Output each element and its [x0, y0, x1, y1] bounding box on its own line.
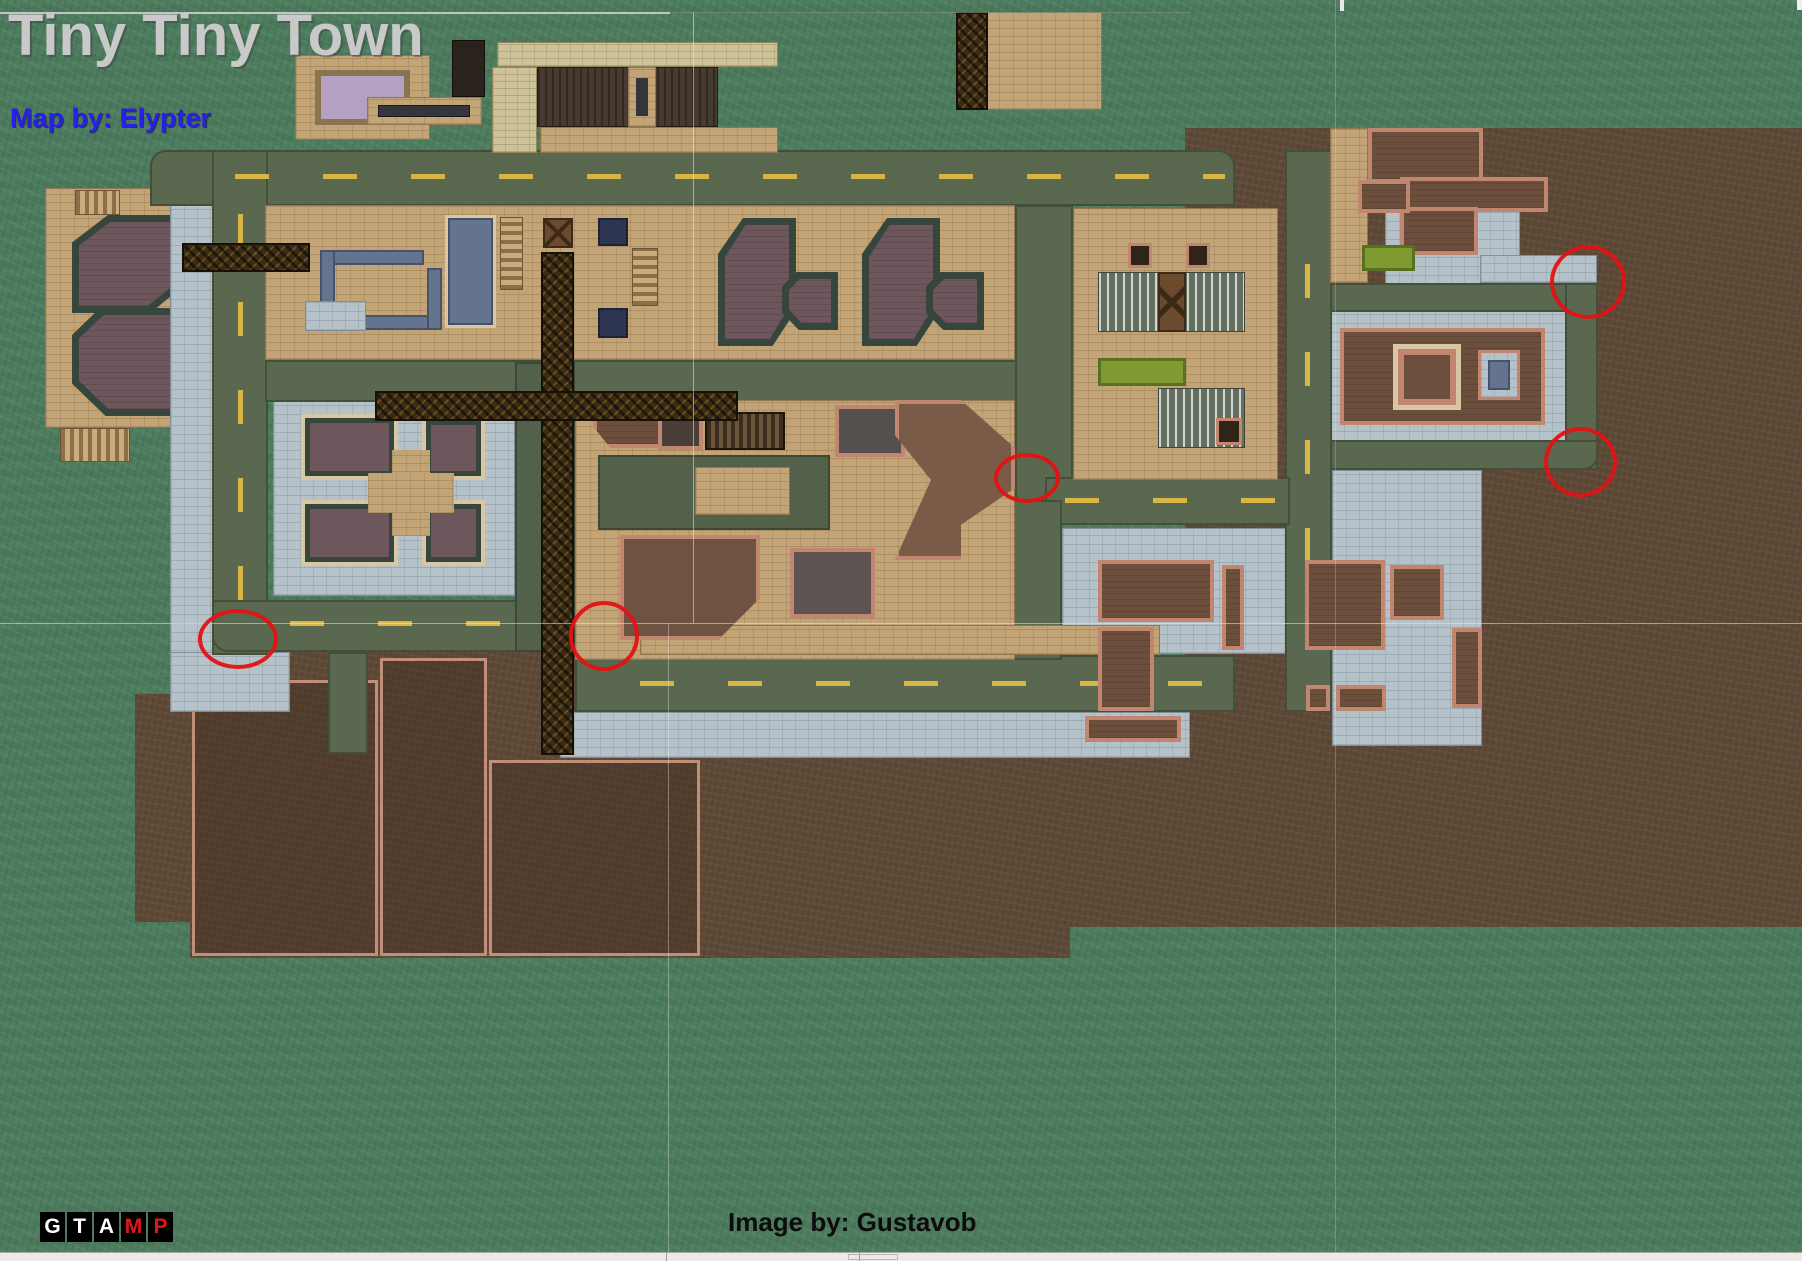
right-wall	[1368, 128, 1483, 183]
right-building-court	[1393, 344, 1461, 410]
left-block-building	[72, 215, 184, 313]
tan-wall-low	[540, 127, 778, 153]
courtyard-plus	[368, 473, 454, 513]
plaza-pool	[448, 218, 493, 325]
warehouse-lawn	[1098, 358, 1186, 386]
yard-plot	[1098, 627, 1154, 711]
left-block-stairs-lower	[60, 428, 130, 462]
plaza-slab	[598, 218, 628, 246]
warehouse-crate-pad	[1128, 243, 1152, 268]
storage-crates	[1158, 272, 1186, 332]
warehouse-crate-pad	[1216, 418, 1242, 445]
plaza-pav-patch	[305, 301, 366, 331]
logo-letter-g: G	[40, 1212, 65, 1242]
yard-plot	[1336, 685, 1386, 711]
dirt-plot	[380, 658, 487, 956]
map-author-credit: Map by: Elypter	[10, 103, 211, 134]
bottom-bar-divider	[666, 1253, 667, 1261]
ledge-slot	[378, 105, 470, 117]
corner-tick	[1340, 0, 1344, 11]
bottom-bar-box	[848, 1254, 898, 1260]
warehouse-crate-pad	[1186, 243, 1210, 268]
hex-building	[862, 218, 940, 346]
gtamp-logo: GTAMP	[40, 1212, 173, 1242]
dirt-field-bottom-right	[1060, 740, 1802, 927]
courtyard-pad	[305, 418, 394, 476]
right-plot	[1358, 180, 1410, 213]
courtyard-pad	[426, 420, 481, 476]
logo-letter-m: M	[121, 1212, 146, 1242]
seam-vertical	[1335, 0, 1336, 1253]
circle-center	[994, 453, 1060, 503]
boardwalk-vertical	[541, 252, 574, 755]
bottom-bar	[0, 1252, 1802, 1261]
plaza-stairs	[500, 217, 523, 290]
road-dashes	[1065, 498, 1280, 503]
small-pad	[790, 548, 875, 618]
crate-tower	[956, 12, 988, 110]
left-block-building	[72, 308, 184, 416]
khaki-wall-vert	[492, 67, 537, 153]
dark-tower	[452, 40, 485, 97]
central-courtyard-pad	[695, 467, 790, 515]
yard-plot	[1390, 565, 1444, 620]
circle-bottom-mid	[569, 601, 639, 671]
circle-bottom-left	[198, 609, 278, 669]
hex-building-small	[926, 272, 984, 330]
roof-slot	[636, 78, 648, 116]
plaza-slab	[598, 308, 628, 338]
seam-vertical	[693, 12, 694, 623]
plaza-crate	[543, 218, 573, 248]
boardwalk-horizontal-upper	[182, 243, 310, 272]
khaki-wall-top	[497, 42, 778, 67]
yard-plot	[1085, 716, 1181, 742]
image-author-credit: Image by: Gustavob	[728, 1207, 977, 1238]
logo-letter-a: A	[94, 1212, 119, 1242]
seam-vertical	[668, 623, 669, 1253]
hex-building	[718, 218, 796, 346]
logo-letter-t: T	[67, 1212, 92, 1242]
map-image: Tiny Tiny Town Map by: Elypter Image by:…	[0, 0, 1802, 1261]
yard-plot	[1222, 565, 1244, 650]
road-stub-south	[328, 652, 368, 754]
angled-building	[835, 405, 905, 457]
spiral-court-bar	[427, 268, 442, 330]
right-court-slab	[1488, 360, 1510, 390]
corner-tick	[1797, 0, 1802, 10]
seam-line-top-dim	[670, 12, 1190, 13]
boardwalk-horizontal-mid	[375, 391, 738, 421]
left-block-stairs	[75, 190, 120, 215]
yard-plot	[1098, 560, 1214, 622]
logo-letter-p: P	[148, 1212, 173, 1242]
page-title: Tiny Tiny Town	[8, 2, 424, 69]
road-dashes	[235, 174, 1225, 179]
dirt-strip-left	[135, 694, 190, 922]
hex-building-small	[782, 272, 838, 330]
spiral-court-bar	[320, 250, 424, 265]
yard-plot	[1452, 628, 1482, 708]
yard-plot	[1305, 560, 1385, 650]
circle-mid-right	[1544, 427, 1617, 497]
circle-top-right	[1550, 245, 1626, 319]
yard-plot	[1306, 685, 1330, 711]
plaza-stairs	[632, 248, 658, 306]
right-lawn	[1362, 245, 1415, 271]
